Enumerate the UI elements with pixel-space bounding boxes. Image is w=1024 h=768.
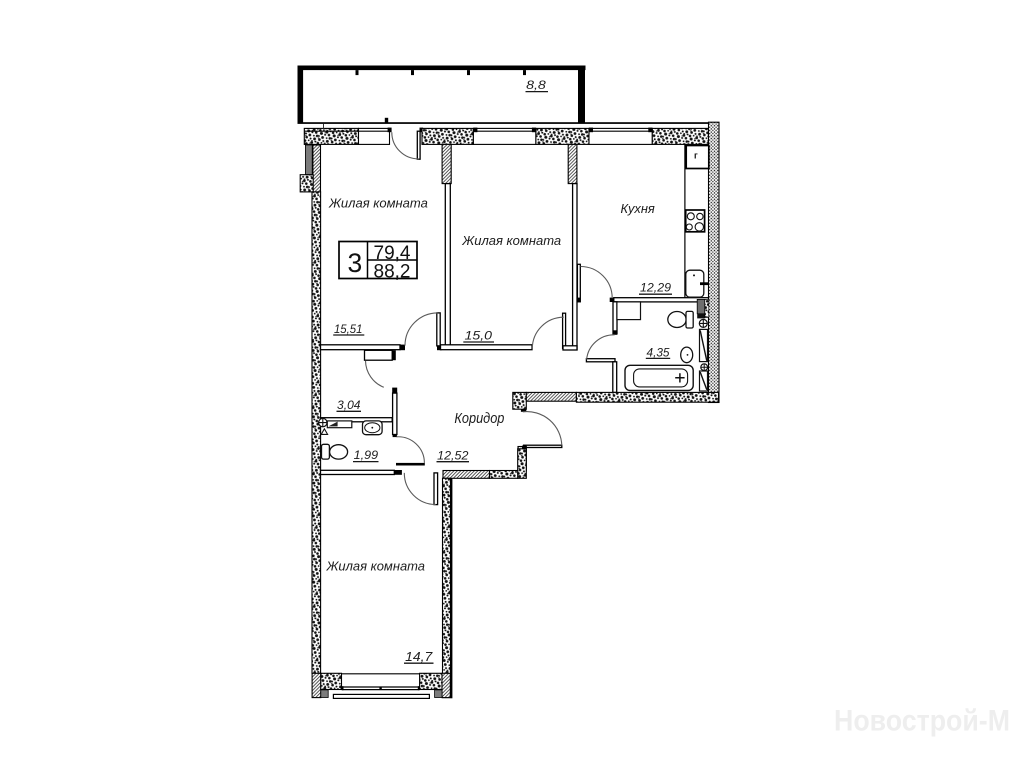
svg-text:Кухня: Кухня: [621, 202, 656, 216]
svg-text:г: г: [694, 151, 698, 161]
svg-text:1,99: 1,99: [354, 450, 379, 462]
svg-text:3: 3: [348, 248, 363, 278]
svg-text:Жилая комната: Жилая комната: [328, 196, 428, 210]
svg-text:15,51: 15,51: [334, 324, 362, 336]
svg-text:12,52: 12,52: [437, 450, 469, 462]
svg-text:8,8: 8,8: [526, 78, 546, 92]
svg-text:Жилая комната: Жилая комната: [461, 234, 561, 248]
svg-text:88,2: 88,2: [374, 261, 411, 282]
svg-text:Новострой-М: Новострой-М: [834, 705, 1010, 738]
svg-text:4,35: 4,35: [647, 347, 671, 359]
svg-text:3,04: 3,04: [337, 400, 361, 412]
svg-text:12,29: 12,29: [640, 283, 672, 295]
svg-text:Коридор: Коридор: [454, 411, 504, 427]
svg-text:15,0: 15,0: [465, 331, 493, 343]
svg-text:14,7: 14,7: [405, 649, 433, 664]
svg-text:Жилая комната: Жилая комната: [325, 559, 425, 573]
